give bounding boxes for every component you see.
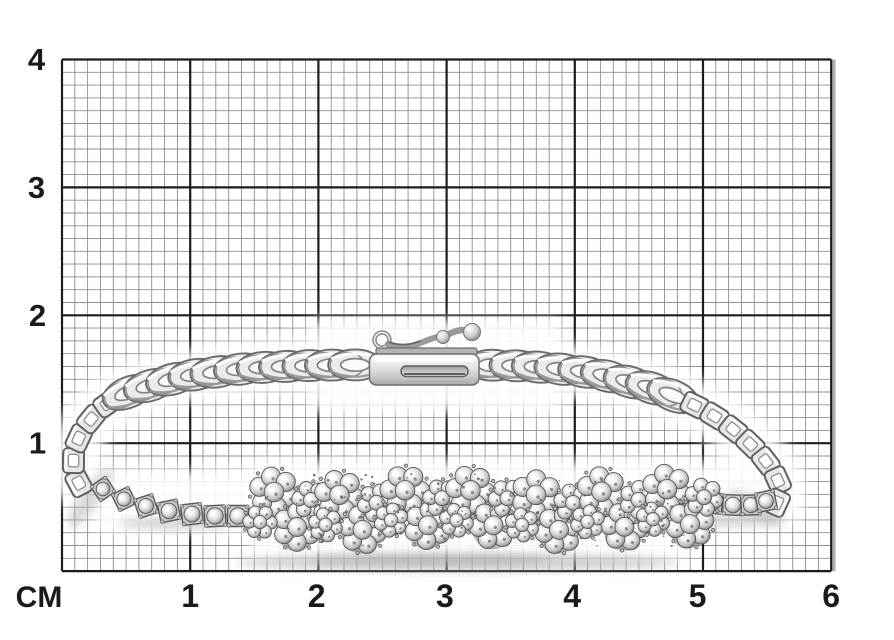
svg-text:5: 5: [689, 578, 707, 614]
svg-text:1: 1: [29, 426, 46, 461]
svg-text:3: 3: [28, 170, 45, 205]
svg-text:2: 2: [29, 298, 46, 333]
svg-text:CM: CM: [16, 581, 63, 614]
svg-text:4: 4: [563, 578, 581, 614]
svg-text:3: 3: [436, 578, 454, 614]
svg-text:1: 1: [181, 578, 199, 614]
svg-text:6: 6: [822, 578, 840, 614]
svg-text:4: 4: [28, 42, 46, 77]
svg-text:2: 2: [308, 578, 326, 614]
